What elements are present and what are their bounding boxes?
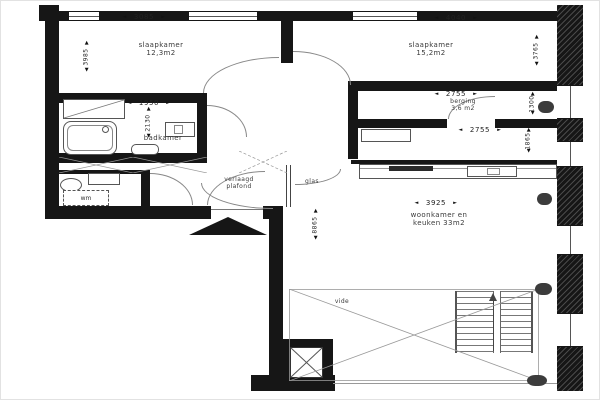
dim-bedroom1-depth-value: 3985: [84, 48, 90, 65]
label-bedroom2-name: slaapkamer: [379, 41, 483, 49]
vent-icon-2: [537, 193, 552, 205]
dim-arrow-right-icon: ►: [166, 101, 170, 106]
vent-icon-3: [535, 283, 552, 295]
label-bathroom: badkamer: [119, 134, 207, 142]
dim-arrow-right-icon: ►: [497, 128, 501, 133]
dim-living-depth: ▲ 8865 ▼: [307, 209, 324, 241]
bathroom-sink-basin: [174, 125, 183, 134]
dim-arrow-left-icon: ◄: [434, 92, 438, 97]
dim-arrow-down-icon: ▼: [535, 62, 539, 67]
label-storage-name: berging: [419, 98, 507, 105]
window-right-1: [557, 85, 583, 119]
wall-top-seg3: [257, 11, 353, 21]
dim-living-width: ◄ 3925 ►: [389, 199, 483, 207]
window-top-2: [189, 11, 257, 21]
dim-arrow-right-icon: ►: [473, 92, 477, 97]
window-right-3: [557, 225, 583, 255]
dim-bedroom2-width: ◄ 4040 ►: [411, 14, 501, 22]
entrance-threshold-line: [211, 209, 263, 210]
wall-left: [45, 11, 59, 219]
floor-plan: wm slaapkamer 12,3m2 slaapkamer 15,2m2 b…: [0, 0, 600, 400]
dim-arrow-down-icon: ▼: [527, 149, 531, 154]
dashed-hatch: [239, 151, 287, 173]
label-vide-text: vide: [335, 298, 349, 305]
hall-cabinet: [361, 129, 411, 142]
dim-bathroom-depth: ▲ 2130 ▼: [140, 107, 157, 139]
dim-arrow-right-icon: ►: [473, 16, 477, 21]
label-bedroom2: slaapkamer 15,2m2: [379, 41, 483, 57]
dim-arrow-down-icon: ▼: [85, 68, 89, 73]
dim-storage-width: ◄ 2755 ►: [409, 90, 503, 98]
dim-bedroom1-width-value: 3085: [134, 13, 154, 21]
window-top-1: [69, 11, 99, 21]
window-top-3: [353, 11, 417, 21]
label-vide: vide: [325, 298, 359, 305]
wall-bottom-upper-left-a: [45, 206, 211, 219]
label-storage: berging 3,6 m2: [419, 98, 507, 112]
label-lowered-ceiling: verlaagd plafond: [211, 176, 267, 190]
dim-living-depth-value: 8865: [313, 216, 319, 233]
dim-arrow-right-icon: ►: [453, 201, 457, 206]
dim-bedroom2-depth-value: 3765: [534, 42, 540, 59]
dim-hall-width-value: 2755: [470, 126, 490, 134]
door-arc-bedroom2: [293, 51, 351, 85]
bathtub: [63, 121, 117, 155]
washing-machine-label: wm: [81, 195, 92, 202]
dim-arrow-up-icon: ▲: [147, 107, 151, 112]
door-arc-bedroom1: [203, 57, 279, 93]
bathtub-faucet-icon: [102, 126, 109, 133]
dim-hall-width: ◄ 2755 ►: [433, 126, 527, 134]
label-glass-text: glas: [305, 178, 319, 185]
dim-hall-depth-value: 1865: [526, 132, 532, 149]
label-bedroom1-area: 12,3m2: [109, 49, 213, 57]
kitchen-cooktop: [389, 166, 433, 171]
label-living-area: keuken 33m2: [383, 219, 495, 227]
dim-storage-depth: ▲ 1300 ▼: [524, 92, 541, 116]
dim-arrow-left-icon: ◄: [414, 201, 418, 206]
dim-arrow-left-icon: ◄: [458, 128, 462, 133]
door-arc-bathroom: [207, 105, 247, 137]
wall-wc-right: [141, 170, 150, 210]
label-lowered-ceiling-2: plafond: [211, 183, 267, 190]
dim-bedroom2-width-value: 4040: [446, 14, 466, 22]
dim-bedroom2-depth: ▲ 3765 ▼: [528, 35, 545, 67]
label-storage-area: 3,6 m2: [419, 105, 507, 112]
bathroom-toilet: [131, 144, 159, 155]
vent-icon-4: [527, 375, 547, 386]
label-lowered-ceiling-1: verlaagd: [211, 176, 267, 183]
toilet-cistern: [88, 173, 120, 185]
dim-bathroom-depth-value: 2130: [146, 114, 152, 131]
dim-arrow-left-icon: ◄: [122, 15, 126, 20]
entrance-arrow-icon: [189, 217, 267, 235]
dim-arrow-left-icon: ◄: [127, 101, 131, 106]
dim-arrow-right-icon: ►: [161, 15, 165, 20]
label-living-name: woonkamer en: [383, 211, 495, 219]
dim-arrow-up-icon: ▲: [314, 209, 318, 214]
dim-arrow-up-icon: ▲: [85, 41, 89, 46]
door-arc-wc: [150, 173, 193, 205]
washing-machine-box: wm: [63, 190, 109, 206]
dim-storage-width-value: 2755: [446, 90, 466, 98]
dim-arrow-left-icon: ◄: [434, 16, 438, 21]
dim-storage-depth-value: 1300: [530, 95, 536, 112]
dim-arrow-down-icon: ▼: [314, 236, 318, 241]
wall-top-seg1: [45, 11, 69, 21]
wall-bedroom-divider: [281, 21, 293, 63]
dim-hall-depth: ▲ 1865 ▼: [520, 128, 537, 154]
dim-bedroom1-width: ◄ 3085 ►: [99, 13, 189, 21]
kitchen-sink-basin: [487, 168, 500, 175]
dim-living-width-value: 3925: [426, 199, 446, 207]
dim-arrow-up-icon: ▲: [535, 35, 539, 40]
window-right-4: [557, 313, 583, 347]
dim-bedroom1-depth: ▲ 3985 ▼: [78, 41, 95, 73]
label-bedroom1: slaapkamer 12,3m2: [109, 41, 213, 57]
label-bedroom2-area: 15,2m2: [379, 49, 483, 57]
label-glass: glas: [299, 178, 325, 185]
label-bedroom1-name: slaapkamer: [109, 41, 213, 49]
dim-arrow-down-icon: ▼: [147, 134, 151, 139]
lowered-ceiling-hatch: [59, 157, 207, 173]
label-living: woonkamer en keuken 33m2: [383, 211, 495, 227]
window-right-2: [557, 141, 583, 167]
